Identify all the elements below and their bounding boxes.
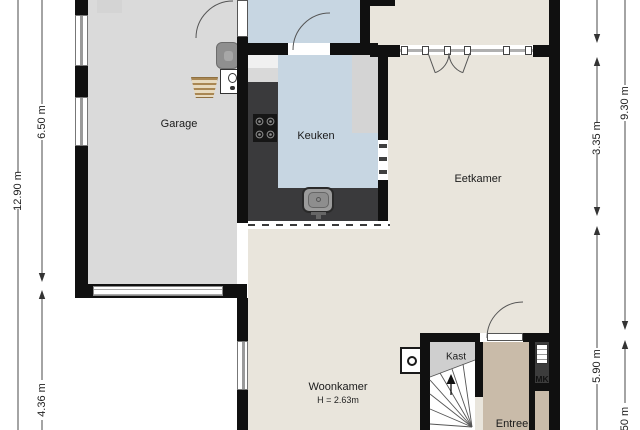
room-label-kast: Kast — [446, 352, 466, 363]
dim-left-lower: 4.36 m — [36, 383, 48, 417]
window-icon — [237, 341, 248, 390]
wall-segment — [360, 0, 370, 45]
sink-faucet-nub — [316, 214, 321, 219]
window-post — [464, 46, 471, 55]
wall-segment — [237, 55, 248, 223]
wall-segment — [529, 383, 549, 391]
wall-segment — [75, 0, 88, 15]
door-opening — [288, 43, 330, 55]
room-label-woonkamer-height: H = 2.63m — [317, 395, 359, 405]
window-icon — [75, 97, 88, 146]
entree-floor-ext — [535, 391, 549, 430]
kitchen-cabinet-right — [352, 55, 378, 133]
gas-hob-icon — [253, 114, 277, 142]
floor-plan: 12.90 m 6.50 m 4.36 m 9.30 m 3.35 m 5.90… — [0, 0, 640, 430]
kitchen-counter-light — [248, 68, 278, 82]
top-room-floor — [370, 0, 549, 45]
washing-machine-icon — [216, 42, 239, 69]
window-post — [401, 46, 408, 55]
room-label-woonkamer: Woonkamer — [308, 381, 367, 393]
dim-right-total: 9.30 m — [619, 86, 631, 120]
kitchen-worktop — [248, 55, 278, 68]
meter-cabinet-icon — [536, 344, 548, 364]
wall-segment — [75, 146, 88, 298]
boiler-dot — [230, 86, 235, 90]
garage-floor — [88, 0, 237, 284]
kitchen-sink-icon — [302, 187, 334, 213]
window-icon — [75, 15, 88, 66]
door-leaf — [487, 333, 523, 341]
wall-segment — [420, 333, 480, 342]
wall-segment — [237, 43, 288, 55]
room-label-keuken: Keuken — [297, 130, 334, 142]
garage-door-icon — [93, 286, 223, 296]
wall-segment — [378, 55, 388, 223]
boiler-ring — [228, 73, 237, 83]
dim-left-upper: 6.50 m — [36, 105, 48, 139]
window-post — [525, 46, 532, 55]
garage-cabinet — [97, 0, 122, 13]
room-label-entree: Entree — [496, 418, 528, 430]
window-post — [503, 46, 510, 55]
wall-segment — [75, 66, 88, 97]
wall-segment — [420, 342, 430, 430]
sink-drain — [316, 197, 321, 202]
wall-segment — [523, 333, 549, 342]
wall-segment — [368, 0, 395, 6]
door-leaf — [237, 0, 248, 37]
dim-right-upper: 3.35 m — [591, 121, 603, 155]
dim-right-lower: 5.90 m — [591, 349, 603, 383]
dim-right-bottom: 50 m — [619, 407, 631, 430]
room-label-garage: Garage — [161, 118, 198, 130]
wall-segment — [475, 342, 483, 397]
room-label-mk: MK — [535, 374, 548, 384]
utility-room-floor — [248, 0, 360, 43]
room-label-eetkamer: Eetkamer — [454, 173, 501, 185]
pass-through-opening — [378, 140, 388, 180]
stove-ring — [407, 356, 417, 366]
window-post — [444, 46, 451, 55]
entree-floor — [483, 342, 529, 430]
dim-left-total: 12.90 m — [12, 171, 24, 211]
open-boundary-dashed — [248, 221, 390, 229]
wall-segment — [549, 0, 560, 430]
washer-drum — [224, 51, 233, 61]
window-post — [422, 46, 429, 55]
